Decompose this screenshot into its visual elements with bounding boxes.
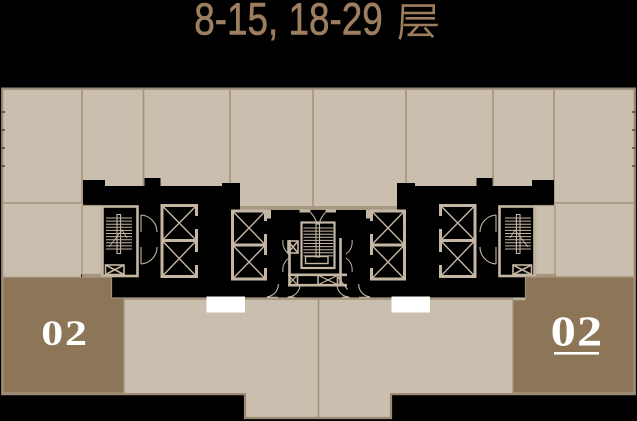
svg-text:8-15, 18-29: 8-15, 18-29 — [194, 0, 383, 44]
svg-text:02: 02 — [41, 313, 89, 353]
svg-text:02: 02 — [551, 309, 604, 355]
